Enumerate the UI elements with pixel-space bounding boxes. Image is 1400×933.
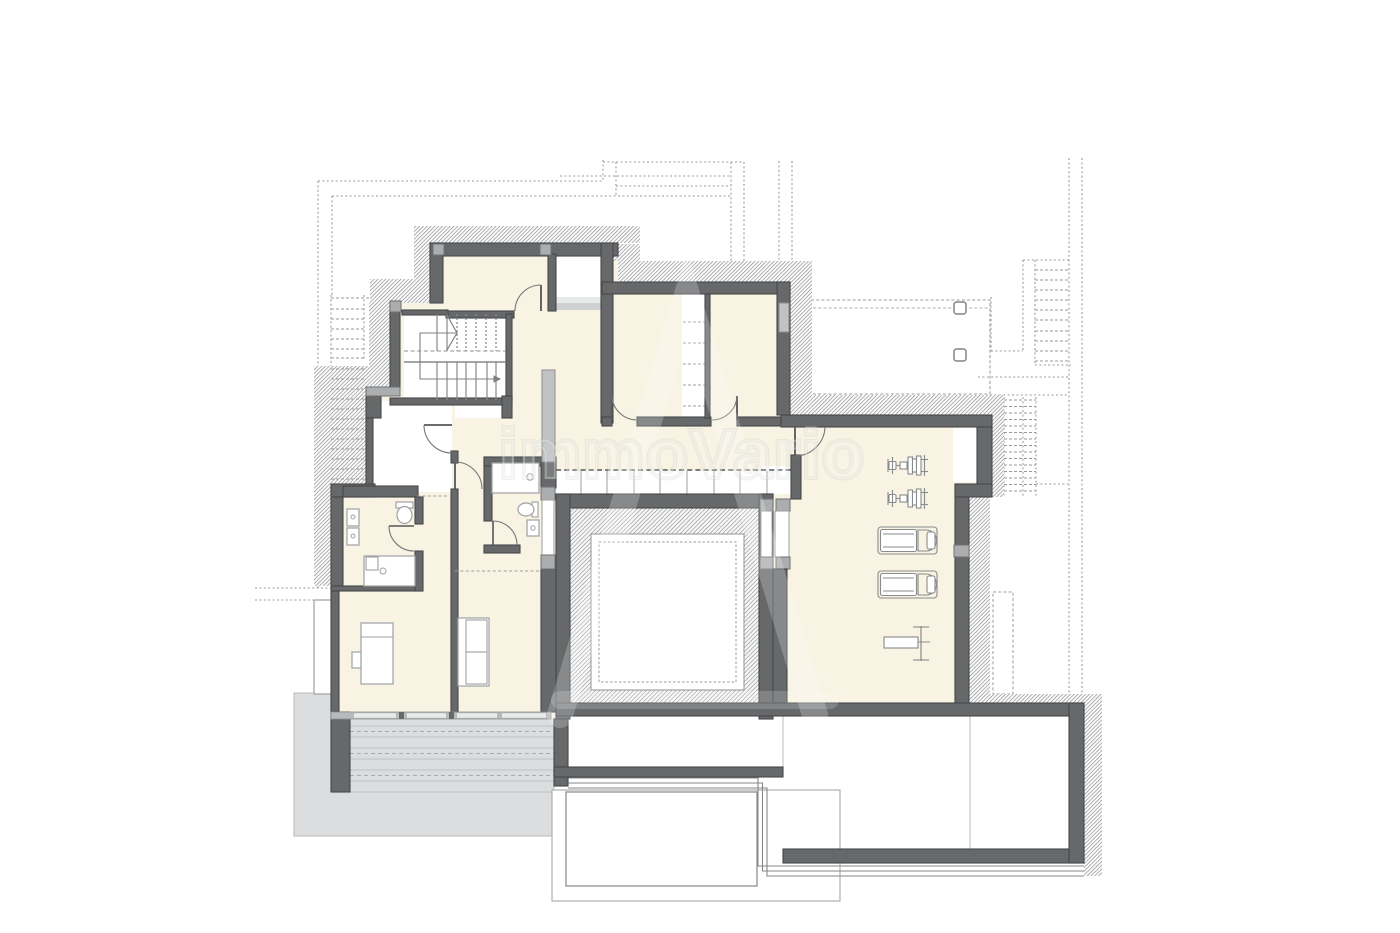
svg-text:immoVario: immoVario: [499, 415, 866, 493]
